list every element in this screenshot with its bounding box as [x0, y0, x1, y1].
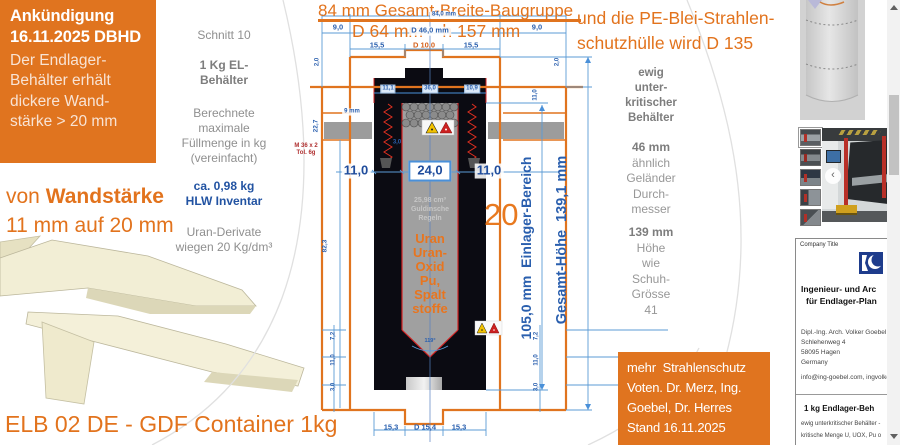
scrollbar-thumb[interactable]: [889, 95, 899, 175]
diameter-note: 46 mm ähnlich Geländer Durch- messer: [600, 140, 702, 218]
einlager-bereich-label: 105,0 mm Einlager-Bereich: [518, 118, 534, 378]
scrollbar-up-icon[interactable]: [890, 5, 898, 10]
card-person: Dipl.-Ing. Arch. Volker Goebel: [801, 329, 886, 336]
pe-shield-line2: schutzhülle wird D 135: [577, 31, 774, 56]
thumbnail-machine-photo-2[interactable]: [800, 149, 821, 166]
scrollbar-down-icon[interactable]: [890, 434, 898, 439]
announcement-box: Ankündigung 16.11.2025 DBHD Der Endlager…: [0, 0, 156, 163]
thumbnail-machine-photo-3[interactable]: [800, 169, 821, 186]
card-headline-1: Ingenieur- und Arc: [801, 284, 876, 294]
cylinder-render: [800, 0, 865, 120]
photo-ceiling: [822, 128, 888, 141]
card-product-desc-1: ewig unterkritischer Behälter -: [801, 421, 880, 427]
card-country: Germany: [801, 359, 828, 366]
fissile-content-label: Uran Uran- Oxid Pu, Spalt stoffe: [398, 232, 462, 316]
photo-step-stool: [836, 205, 857, 215]
volume-note: 25,98 cm³ Guldinsche Regeln: [398, 197, 462, 223]
bottom-plug: [406, 377, 442, 390]
container-3d-render: [800, 0, 865, 120]
thumbnail-machine-photo-1[interactable]: [800, 129, 821, 146]
card-city: 58095 Hagen: [801, 349, 840, 356]
height-comparison: Höhe wie Schuh- Grösse 41: [600, 241, 702, 319]
card-headline-2: für Endlager-Plan: [806, 296, 877, 306]
page-title: ELB 02 DE - GDF Container 1kg: [5, 411, 337, 438]
company-logo: [859, 252, 883, 274]
pe-shield-line1: und die PE-Blei-Strahlen-: [577, 6, 774, 31]
scrollbar-track[interactable]: [887, 0, 900, 445]
photo-red-stripe-right: [882, 136, 886, 198]
gallery-prev-button[interactable]: ‹: [825, 168, 841, 184]
specs-column: Schnitt 10 1 Kg EL- Behälter Berechnete …: [148, 28, 300, 256]
diameter-comparison: ähnlich Geländer Durch- messer: [600, 156, 702, 218]
announcement-title-2: 16.11.2025 DBHD: [10, 27, 146, 48]
votes-box: mehr Strahlenschutz Voten. Dr. Merz, Ing…: [618, 352, 770, 445]
critical-container-note: ewig unter- kritischer Behälter: [600, 66, 702, 126]
thumbnail-machine-photo-5[interactable]: [800, 209, 821, 226]
page: Ankündigung 16.11.2025 DBHD Der Endlager…: [0, 0, 900, 445]
announcement-title-1: Ankündigung: [10, 6, 146, 27]
photo-control-screen: [826, 150, 841, 163]
drawing-heading-dims: D 64 mm h 157 mm: [352, 21, 520, 42]
business-card: Company Title Ingenieur- und Arc für End…: [795, 238, 889, 445]
container-label: 1 Kg EL- Behälter: [148, 58, 300, 88]
card-product-desc-2: kritische Menge U, UOX, Pu o: [801, 433, 881, 439]
card-product-title: 1 kg Endlager-Beh: [804, 404, 874, 413]
section-label: Schnitt 10: [148, 28, 300, 42]
company-title-label: Company Title: [800, 242, 838, 248]
height-value: 139 mm: [600, 225, 702, 241]
photo-red-stripe-left: [844, 138, 848, 206]
hlw-inventory-note: ca. 0,98 kg HLW Inventar: [148, 179, 300, 210]
gesamt-hoehe-label: Gesamt-Höhe 139,1 mm: [554, 110, 570, 370]
wall-note-bold: Wandstärke: [46, 185, 164, 208]
wall-thickness-callout: 20: [484, 197, 518, 233]
polygon-3d-shape: [0, 236, 304, 404]
votes-line3: Goebel, Dr. Herres: [627, 398, 761, 418]
wall-note-prefix: von: [6, 185, 46, 208]
card-divider: [796, 394, 888, 395]
photo-thumbnails: [800, 129, 821, 229]
height-note: 139 mm Höhe wie Schuh- Grösse 41: [600, 225, 702, 319]
uranium-density-note: Uran-Derivate wiegen 20 Kg/dm³: [148, 225, 300, 256]
diameter-value: 46 mm: [600, 140, 702, 156]
card-street: Schlehenweg 4: [801, 339, 845, 346]
votes-line1: mehr Strahlenschutz: [627, 358, 761, 378]
votes-line2: Voten. Dr. Merz, Ing.: [627, 378, 761, 398]
thumbnail-machine-photo-4[interactable]: [800, 189, 821, 206]
pe-flange-left: [324, 122, 372, 139]
votes-line4: Stand 16.11.2025: [627, 418, 761, 438]
card-email: info@ing-goebel.com, ingvolke: [801, 374, 889, 381]
announcement-body: Der Endlager- Behälter erhält dickere Wa…: [10, 51, 146, 133]
drawing-heading-width: 84 mm Gesamt-Breite-Baugruppe: [318, 1, 573, 21]
pe-shield-note: und die PE-Blei-Strahlen- schutzhülle wi…: [577, 6, 774, 57]
filling-note: Berechnete maximale Füllmenge in kg (ver…: [148, 106, 300, 166]
